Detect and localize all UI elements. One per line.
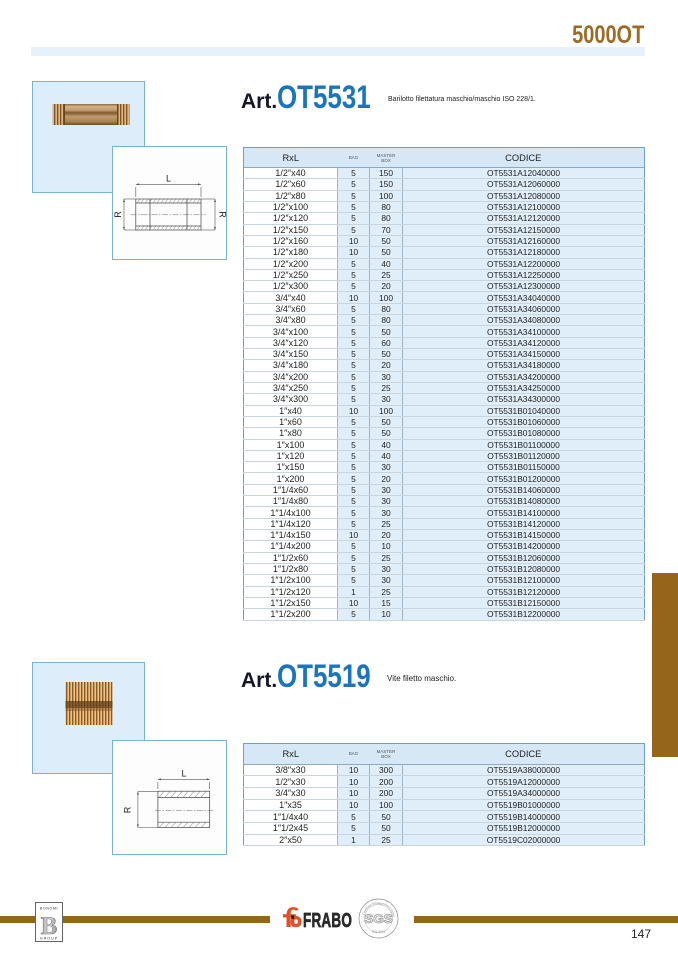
svg-text:R: R <box>218 211 227 218</box>
svg-text:ISO 9001: ISO 9001 <box>372 930 386 934</box>
svg-text:R: R <box>113 211 123 218</box>
svg-text:R: R <box>123 806 133 813</box>
svg-text:SGS: SGS <box>364 912 392 926</box>
svg-text:BONOMI: BONOMI <box>40 907 58 911</box>
svg-text:L: L <box>181 769 186 779</box>
svg-text:GROUP: GROUP <box>40 937 58 941</box>
svg-text:L: L <box>166 174 171 184</box>
